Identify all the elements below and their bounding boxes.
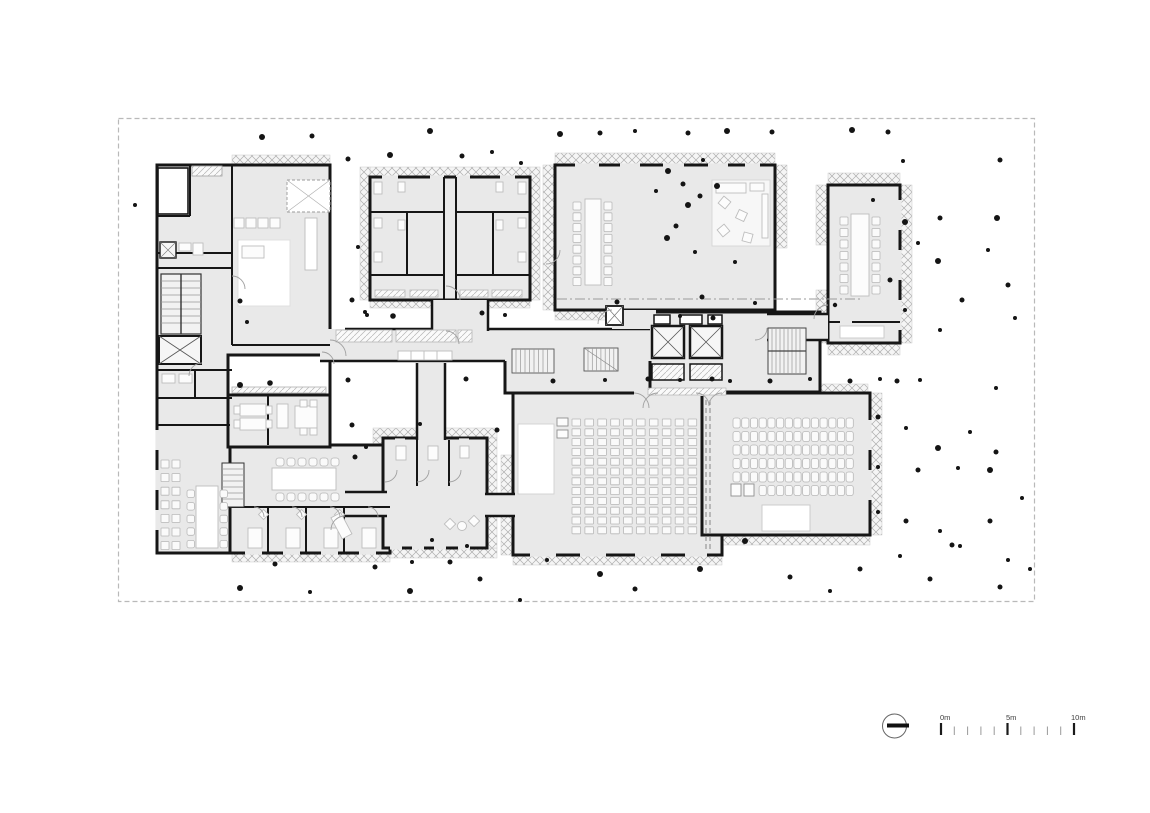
seat — [794, 472, 801, 482]
seat — [220, 515, 228, 523]
seat — [803, 445, 810, 455]
tree-dot — [678, 314, 682, 318]
seat — [820, 432, 827, 442]
seat — [573, 278, 581, 286]
seat — [161, 474, 169, 482]
tree-dot — [245, 320, 249, 324]
seat — [624, 478, 633, 485]
seat — [777, 486, 784, 496]
seat — [662, 429, 671, 436]
seat — [637, 448, 646, 455]
tree-dot — [994, 450, 999, 455]
tree-dot — [986, 248, 990, 252]
seat — [585, 419, 594, 426]
seat — [637, 439, 646, 446]
seat — [309, 458, 317, 466]
seat — [662, 439, 671, 446]
floor-plan-drawing: 0m 5m 10m — [0, 0, 1150, 813]
seat — [637, 468, 646, 475]
seat — [220, 490, 228, 498]
seat — [829, 418, 836, 428]
tree-dot — [646, 377, 651, 382]
seat — [598, 468, 607, 475]
seat — [187, 540, 195, 548]
seat — [837, 418, 844, 428]
seat — [768, 486, 775, 496]
tree-dot — [387, 152, 393, 158]
seat — [572, 458, 581, 465]
tree-dot — [701, 158, 705, 162]
seat — [675, 488, 684, 495]
tree-dot — [1020, 496, 1024, 500]
stage-left — [518, 424, 554, 494]
seat — [572, 517, 581, 524]
seat — [785, 445, 792, 455]
tree-dot — [490, 150, 494, 154]
seat — [662, 517, 671, 524]
seat — [572, 439, 581, 446]
seat — [649, 458, 658, 465]
corridor-changing-east — [485, 494, 515, 516]
seat — [829, 459, 836, 469]
annex-table — [851, 214, 869, 296]
tree-dot — [904, 426, 908, 430]
seat — [742, 418, 749, 428]
seat — [187, 490, 195, 498]
seat — [161, 542, 169, 550]
tree-dot — [346, 378, 351, 383]
seat — [837, 486, 844, 496]
tree-dot — [267, 380, 273, 386]
seat — [759, 445, 766, 455]
tree-dot — [697, 566, 703, 572]
seat — [820, 418, 827, 428]
seat — [287, 458, 295, 466]
tree-dot — [390, 313, 396, 319]
tree-dot — [1006, 558, 1010, 562]
seat — [637, 507, 646, 514]
tree-dot — [871, 198, 875, 202]
seat — [573, 234, 581, 242]
seat — [675, 478, 684, 485]
seat — [624, 439, 633, 446]
seat — [637, 429, 646, 436]
tree-dot — [753, 301, 757, 305]
seat — [611, 419, 620, 426]
tree-dot — [238, 299, 243, 304]
seat — [611, 527, 620, 534]
seat — [794, 459, 801, 469]
scale-label-10m: 10m — [1071, 713, 1086, 722]
seat — [604, 224, 612, 232]
tree-dot — [133, 203, 137, 207]
seat — [688, 439, 697, 446]
seat — [637, 488, 646, 495]
tree-dot — [886, 130, 891, 135]
seat — [598, 507, 607, 514]
tree-dot — [876, 465, 880, 469]
seat — [649, 478, 658, 485]
tree-dot — [724, 128, 730, 134]
seat — [840, 275, 848, 283]
tree-dot — [988, 519, 993, 524]
seat — [637, 419, 646, 426]
tree-dot — [916, 241, 920, 245]
seat — [172, 501, 180, 509]
seat — [572, 429, 581, 436]
seat — [785, 418, 792, 428]
tree-dot — [916, 468, 921, 473]
tree-dot — [1006, 283, 1011, 288]
seat — [276, 493, 284, 501]
seat — [777, 445, 784, 455]
seat — [161, 460, 169, 468]
tree-dot — [598, 131, 603, 136]
canteen-table-2 — [196, 486, 218, 548]
scale-bar: 0m 5m 10m — [940, 713, 1086, 735]
tree-dot — [904, 519, 909, 524]
seat — [688, 517, 697, 524]
seat — [846, 459, 853, 469]
tree-dot — [858, 567, 863, 572]
tree-dot — [693, 250, 697, 254]
tree-dot — [551, 379, 556, 384]
tree-dot — [464, 377, 469, 382]
seat — [777, 472, 784, 482]
tree-dot — [742, 538, 748, 544]
seat — [220, 503, 228, 511]
seat — [572, 527, 581, 534]
tree-dot — [460, 154, 465, 159]
seat — [331, 458, 339, 466]
seat — [649, 429, 658, 436]
seat — [598, 419, 607, 426]
stair-canteen — [222, 463, 244, 507]
seat — [637, 517, 646, 524]
seat — [846, 432, 853, 442]
seat — [585, 517, 594, 524]
seat — [688, 468, 697, 475]
tree-dot — [418, 422, 422, 426]
seat — [750, 459, 757, 469]
tree-dot — [1028, 567, 1032, 571]
seat — [585, 507, 594, 514]
seat — [837, 445, 844, 455]
seat — [872, 252, 880, 260]
seat — [172, 474, 180, 482]
seat — [846, 472, 853, 482]
seat — [611, 429, 620, 436]
seat — [759, 459, 766, 469]
seat — [675, 517, 684, 524]
seat — [803, 432, 810, 442]
tree-dot — [310, 134, 315, 139]
seat — [649, 439, 658, 446]
tree-dot — [938, 328, 942, 332]
seat — [662, 527, 671, 534]
seat — [829, 445, 836, 455]
tree-dot — [665, 168, 671, 174]
seat — [662, 468, 671, 475]
seat — [573, 224, 581, 232]
seat — [611, 468, 620, 475]
stair-corridor-a — [512, 349, 554, 373]
tree-dot — [356, 245, 360, 249]
seat — [637, 478, 646, 485]
seat — [675, 429, 684, 436]
stage-right — [762, 505, 810, 531]
seat — [820, 472, 827, 482]
annex-chairs-left — [840, 217, 848, 294]
seat — [785, 432, 792, 442]
hall-right-last-row — [759, 486, 853, 496]
tree-dot — [365, 313, 369, 317]
seat — [585, 429, 594, 436]
tree-dot — [998, 158, 1003, 163]
seat — [637, 497, 646, 504]
corridor-changing-west — [345, 492, 387, 516]
seat — [662, 458, 671, 465]
scale-label-0m: 0m — [940, 713, 950, 722]
seat — [309, 493, 317, 501]
tree-dot — [950, 543, 955, 548]
tree-dot — [938, 216, 943, 221]
seat — [161, 528, 169, 536]
seat — [649, 488, 658, 495]
tree-dot — [664, 235, 670, 241]
seat — [298, 493, 306, 501]
seat — [220, 528, 228, 536]
tree-dot — [895, 379, 900, 384]
tree-dot — [430, 538, 434, 542]
seat — [872, 229, 880, 237]
seat — [611, 488, 620, 495]
seat — [624, 507, 633, 514]
seat — [585, 497, 594, 504]
tree-dot — [898, 554, 902, 558]
tree-dot — [308, 590, 312, 594]
tree-dot — [674, 224, 679, 229]
seat — [624, 419, 633, 426]
seat — [572, 419, 581, 426]
north-symbol — [883, 714, 910, 738]
seat — [585, 488, 594, 495]
seat — [662, 488, 671, 495]
seat — [662, 507, 671, 514]
seat — [840, 252, 848, 260]
tree-dot — [960, 298, 965, 303]
seat — [820, 486, 827, 496]
seat — [688, 507, 697, 514]
tree-dot — [876, 510, 880, 514]
seat — [777, 418, 784, 428]
tree-dot — [427, 128, 433, 134]
tree-dot — [768, 379, 773, 384]
tree-dot — [410, 560, 414, 564]
tree-dot — [364, 445, 368, 449]
corridor-link-south — [417, 363, 445, 440]
seat — [287, 493, 295, 501]
tree-dot — [698, 194, 703, 199]
seat — [598, 488, 607, 495]
seat — [172, 460, 180, 468]
seat — [611, 478, 620, 485]
tree-dot — [938, 529, 942, 533]
seat — [675, 507, 684, 514]
tree-dot — [733, 260, 737, 264]
tree-dot — [968, 430, 972, 434]
tree-dot — [700, 295, 705, 300]
seat — [759, 486, 766, 496]
seat — [811, 486, 818, 496]
tree-dot — [902, 219, 908, 225]
seat — [688, 478, 697, 485]
seat — [675, 497, 684, 504]
seat — [573, 267, 581, 275]
seat — [585, 527, 594, 534]
seat — [846, 486, 853, 496]
tree-dot — [373, 565, 378, 570]
seat — [820, 445, 827, 455]
seat — [794, 418, 801, 428]
seat — [829, 432, 836, 442]
seat — [649, 468, 658, 475]
seat — [785, 486, 792, 496]
seat — [649, 507, 658, 514]
seat — [803, 459, 810, 469]
seat — [649, 527, 658, 534]
seat — [785, 459, 792, 469]
tree-dot — [994, 386, 998, 390]
tree-dot — [353, 455, 358, 460]
seat — [331, 493, 339, 501]
seat — [811, 472, 818, 482]
seat — [811, 418, 818, 428]
seat — [604, 234, 612, 242]
seat — [872, 263, 880, 271]
seat — [598, 497, 607, 504]
seat — [187, 515, 195, 523]
seat — [733, 418, 740, 428]
seat — [572, 507, 581, 514]
seat — [573, 245, 581, 253]
tree-dot — [833, 303, 837, 307]
seat — [785, 472, 792, 482]
seat — [794, 445, 801, 455]
seat — [872, 240, 880, 248]
seat — [604, 202, 612, 210]
tree-dot — [678, 378, 682, 382]
tree-dot — [728, 379, 732, 383]
seat — [768, 432, 775, 442]
tree-dot — [987, 467, 993, 473]
tree-dot — [503, 313, 507, 317]
seat — [675, 458, 684, 465]
tree-dot — [478, 577, 483, 582]
stair-east — [768, 328, 806, 374]
scale-bar-ticks — [941, 723, 1074, 735]
seat — [688, 429, 697, 436]
seat — [837, 472, 844, 482]
tree-dot — [480, 311, 485, 316]
seat — [759, 418, 766, 428]
tree-dot — [350, 298, 355, 303]
seat — [585, 458, 594, 465]
seat — [846, 418, 853, 428]
seat — [733, 432, 740, 442]
seat — [187, 503, 195, 511]
tree-dot — [615, 300, 620, 305]
seat — [662, 448, 671, 455]
tree-dot — [654, 189, 658, 193]
seat — [161, 487, 169, 495]
tree-dot — [557, 131, 563, 137]
seat — [840, 229, 848, 237]
tree-dot — [407, 588, 413, 594]
seat — [572, 478, 581, 485]
seat — [872, 286, 880, 294]
tree-dot — [237, 585, 243, 591]
seat — [611, 439, 620, 446]
seat — [624, 497, 633, 504]
seat — [611, 458, 620, 465]
seat — [276, 458, 284, 466]
seat — [320, 458, 328, 466]
seat — [759, 472, 766, 482]
tree-dot — [878, 377, 882, 381]
seat — [573, 213, 581, 221]
seat — [777, 432, 784, 442]
seat — [750, 472, 757, 482]
tree-dot — [685, 202, 691, 208]
lounge-furniture — [712, 180, 770, 246]
seat — [572, 468, 581, 475]
seat — [598, 448, 607, 455]
tree-dot — [545, 558, 549, 562]
seat — [803, 486, 810, 496]
seat — [872, 275, 880, 283]
seat — [829, 486, 836, 496]
seat — [624, 448, 633, 455]
seat — [649, 419, 658, 426]
scale-label-5m: 5m — [1006, 713, 1016, 722]
stair-west — [161, 274, 201, 334]
tree-dot — [711, 316, 716, 321]
seat — [811, 432, 818, 442]
corridor-stub-north — [432, 300, 488, 331]
seat — [742, 432, 749, 442]
seat — [624, 527, 633, 534]
seat — [662, 419, 671, 426]
tree-dot — [903, 308, 907, 312]
seat — [598, 478, 607, 485]
tree-dot — [849, 127, 855, 133]
seat — [662, 478, 671, 485]
seat — [750, 445, 757, 455]
seat — [320, 493, 328, 501]
seat — [742, 472, 749, 482]
seat — [688, 488, 697, 495]
seat — [675, 468, 684, 475]
seat — [803, 472, 810, 482]
seat — [837, 432, 844, 442]
tree-dot — [1013, 316, 1017, 320]
seat — [768, 472, 775, 482]
seat — [161, 514, 169, 522]
sanitary-block-north — [370, 177, 530, 300]
seat — [161, 501, 169, 509]
tree-dot — [901, 159, 905, 163]
